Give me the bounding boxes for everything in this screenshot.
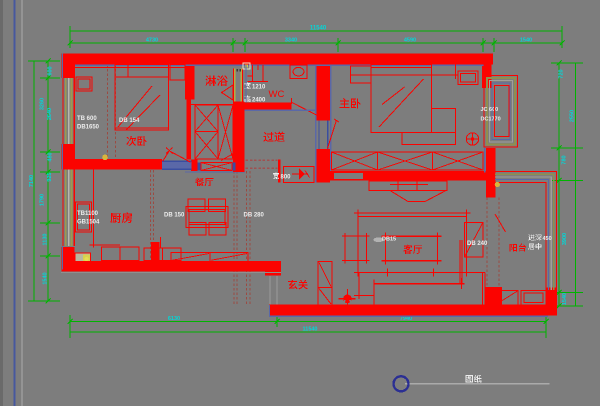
svg-text:2550: 2550 xyxy=(570,110,576,122)
svg-text:1540: 1540 xyxy=(43,272,49,284)
svg-text:DB1650: DB1650 xyxy=(77,125,100,131)
svg-text:3340: 3340 xyxy=(285,38,297,44)
svg-text:2640: 2640 xyxy=(47,108,53,120)
svg-text:1790: 1790 xyxy=(40,194,46,206)
svg-text:1540: 1540 xyxy=(520,38,532,44)
svg-text:450: 450 xyxy=(543,236,552,242)
svg-text:720: 720 xyxy=(559,69,565,78)
svg-text:DB 240: DB 240 xyxy=(467,241,488,247)
svg-text:2400: 2400 xyxy=(252,98,266,104)
svg-text:7140: 7140 xyxy=(29,175,35,187)
svg-text:GB1504: GB1504 xyxy=(77,220,100,226)
svg-text:11540: 11540 xyxy=(310,26,327,32)
svg-text:3260: 3260 xyxy=(40,98,46,110)
svg-text:1130: 1130 xyxy=(43,234,49,246)
svg-text:925: 925 xyxy=(47,172,53,181)
svg-text:DB 154: DB 154 xyxy=(119,118,140,124)
svg-text:780: 780 xyxy=(562,155,568,164)
svg-text:4730: 4730 xyxy=(146,38,158,44)
svg-text:DB15: DB15 xyxy=(382,237,396,243)
svg-text:480: 480 xyxy=(48,152,54,161)
svg-text:TB1100: TB1100 xyxy=(77,211,99,217)
svg-text:WC: WC xyxy=(269,89,285,100)
svg-text:11540: 11540 xyxy=(303,327,318,333)
svg-text:4590: 4590 xyxy=(404,38,416,44)
svg-text:6130: 6130 xyxy=(168,316,180,322)
svg-text:1210: 1210 xyxy=(252,85,266,91)
svg-text:JC 600: JC 600 xyxy=(481,107,499,113)
svg-text:DB 280: DB 280 xyxy=(244,213,265,219)
svg-text:DB 150: DB 150 xyxy=(164,213,185,219)
svg-text:TB 600: TB 600 xyxy=(77,116,97,122)
svg-text:600: 600 xyxy=(48,66,54,75)
svg-text:1540: 1540 xyxy=(562,293,568,305)
svg-text:3900: 3900 xyxy=(562,233,568,245)
svg-text:800: 800 xyxy=(281,175,292,181)
svg-text:DC1770: DC1770 xyxy=(481,117,501,123)
